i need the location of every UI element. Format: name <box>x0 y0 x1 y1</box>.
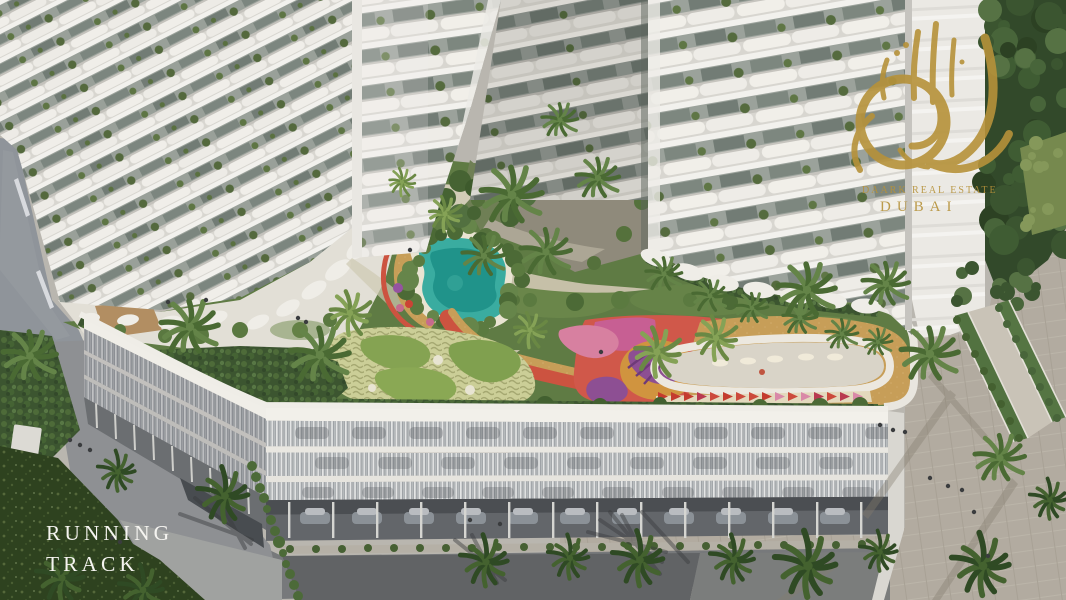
svg-text:DUBAI: DUBAI <box>880 199 958 215</box>
svg-text:TRACK: TRACK <box>46 552 139 576</box>
svg-text:RUNNING: RUNNING <box>46 521 173 545</box>
svg-text:DAARK REAL ESTATE: DAARK REAL ESTATE <box>862 185 998 196</box>
